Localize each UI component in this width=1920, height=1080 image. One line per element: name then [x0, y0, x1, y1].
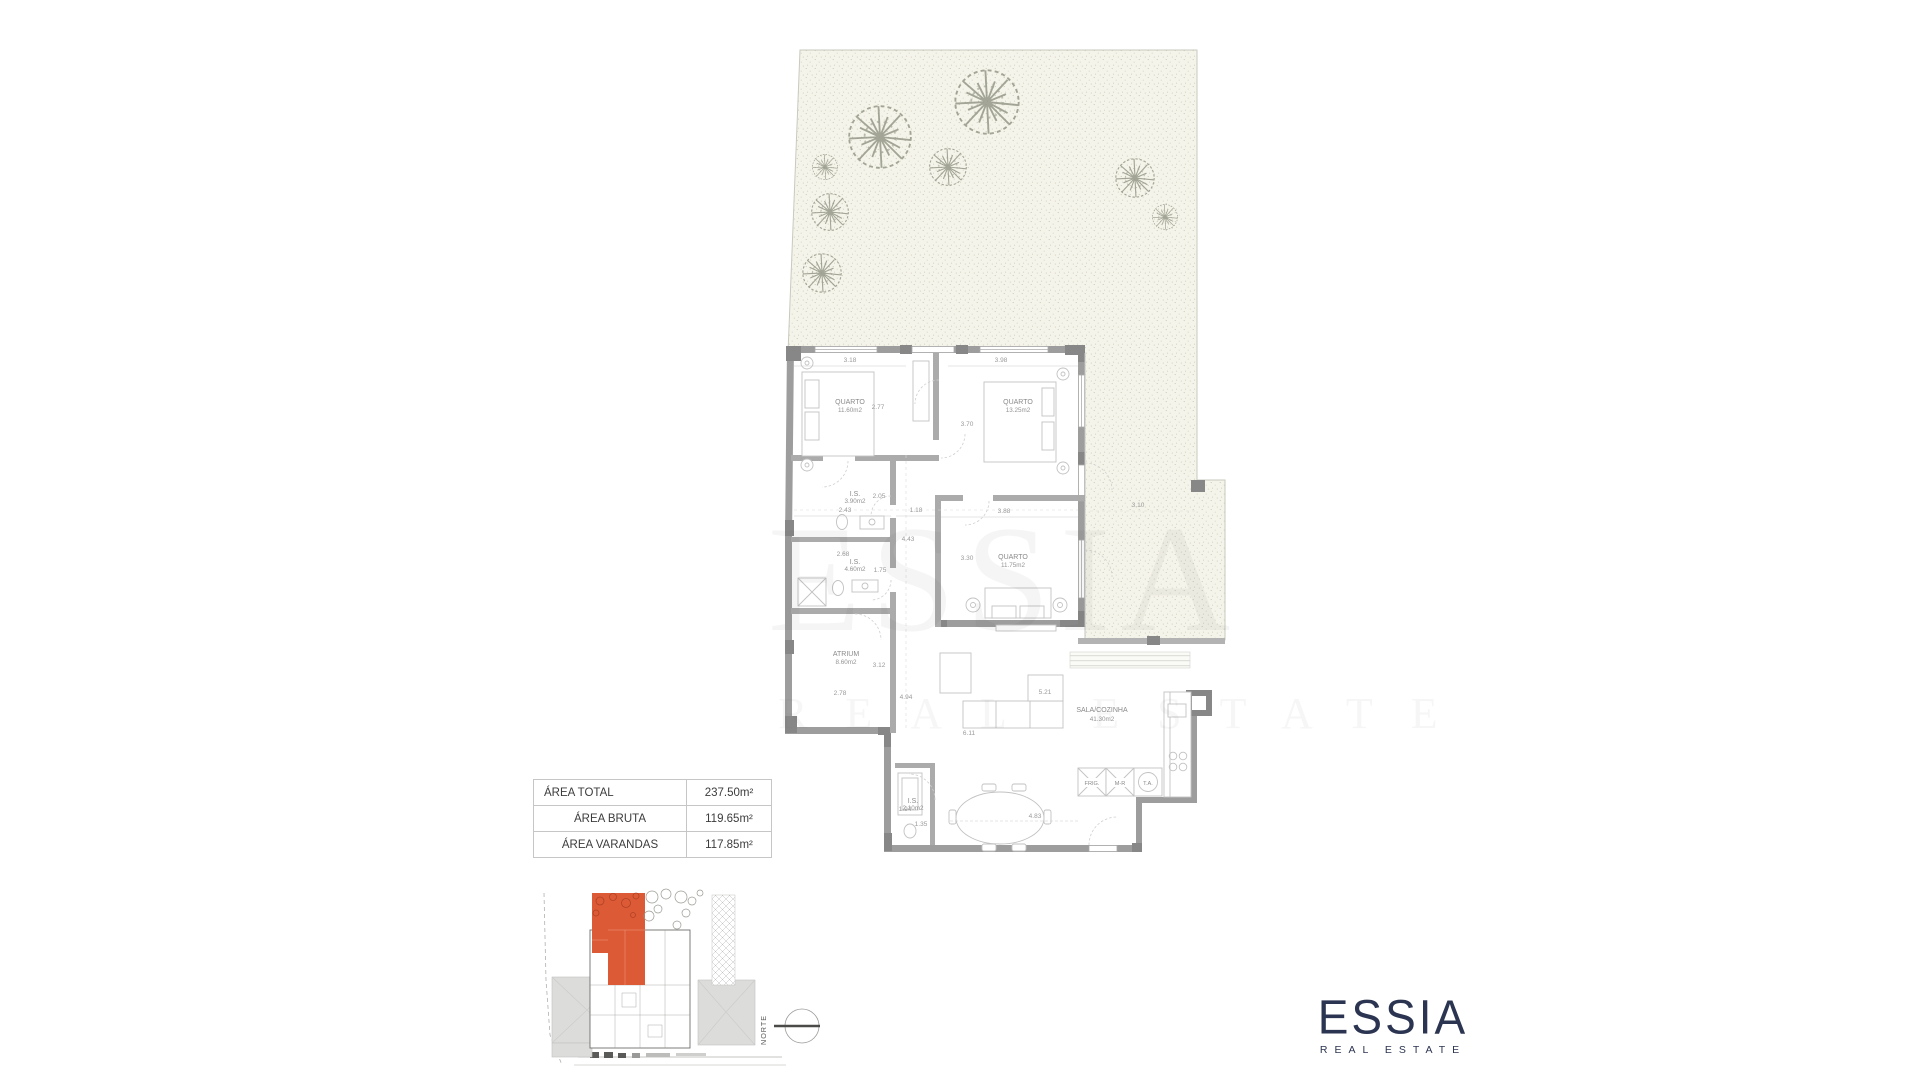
frig-label: FRIG.	[1085, 781, 1100, 787]
dim: 3.18	[844, 357, 857, 364]
room-area: 11.60m2	[838, 407, 863, 414]
site-trees	[644, 889, 703, 929]
area-total-value: 237.50m²	[686, 780, 771, 805]
area-table: ÁREA TOTAL 237.50m² ÁREA BRUTA 119.65m² …	[533, 779, 772, 858]
watermark-tagline: REAL ESTATE	[778, 688, 1476, 739]
ta-label: T.A.	[1143, 781, 1153, 787]
table-row: ÁREA TOTAL 237.50m²	[534, 780, 771, 806]
area-varandas-value: 117.85m²	[686, 832, 771, 857]
floor-plan: FRIG. M-R T.A.	[760, 40, 1230, 870]
dim: 4.83	[1029, 813, 1042, 820]
page: FRIG. M-R T.A.	[0, 0, 1920, 1080]
room-name: QUARTO	[835, 399, 865, 406]
dim: 3.98	[995, 357, 1008, 364]
area-varandas-label: ÁREA VARANDAS	[534, 839, 686, 851]
mr-label: M-R	[1115, 781, 1126, 787]
lattice-structure	[712, 895, 735, 985]
north-label: NORTE	[759, 1015, 768, 1045]
brand-tagline: REAL ESTATE	[1308, 1044, 1478, 1056]
room-name: I.S.	[908, 798, 919, 805]
floor-plan-drawing: FRIG. M-R T.A.	[760, 40, 1230, 870]
site-plan-drawing: NORTE	[530, 885, 840, 1080]
dim: 2.77	[872, 404, 885, 411]
dim: 3.70	[961, 421, 974, 428]
north-compass: NORTE	[759, 1009, 820, 1045]
table-row: ÁREA BRUTA 119.65m²	[534, 806, 771, 832]
brand-name: ESSIA	[1308, 993, 1478, 1041]
area-total-label: ÁREA TOTAL	[534, 787, 686, 799]
dim: 1.35	[915, 821, 928, 828]
area-bruta-value: 119.65m²	[686, 806, 771, 831]
brand-logo: ESSIA REAL ESTATE	[1308, 994, 1478, 1056]
room-area: 13.25m2	[1006, 407, 1031, 414]
area-bruta-label: ÁREA BRUTA	[534, 813, 686, 825]
room-name: QUARTO	[1003, 399, 1033, 406]
table-row: ÁREA VARANDAS 117.85m²	[534, 832, 771, 857]
watermark-name: ESSIA	[768, 492, 1240, 666]
site-plan: NORTE	[530, 885, 840, 1080]
room-area: 2.10m2	[902, 805, 924, 812]
